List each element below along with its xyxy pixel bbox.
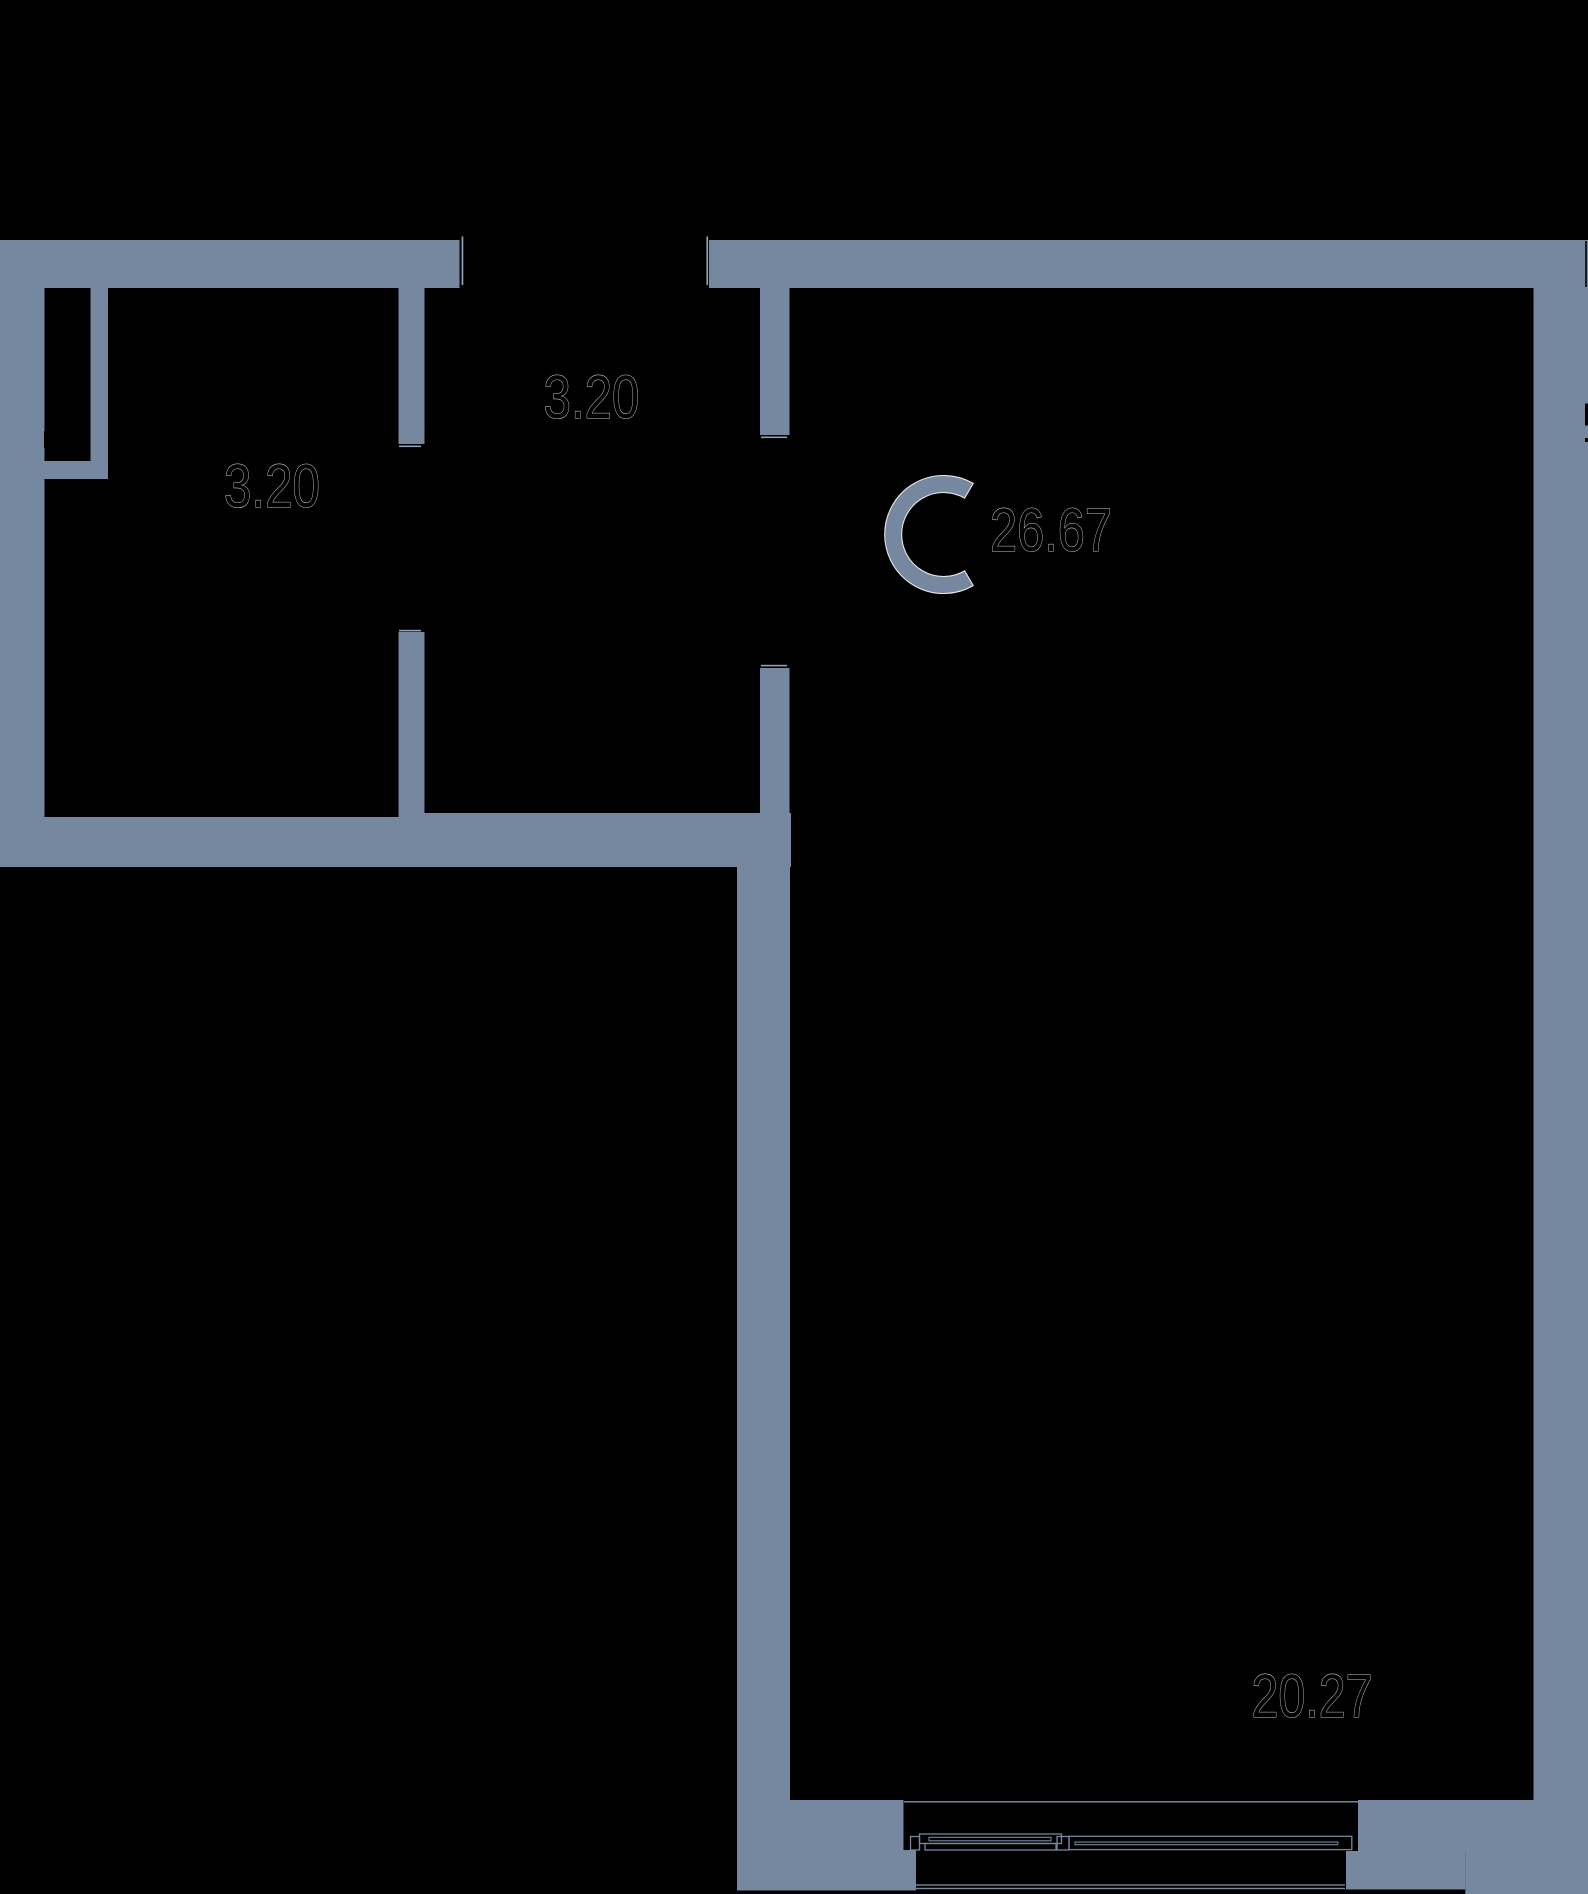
- svg-text:3.20: 3.20: [224, 452, 320, 520]
- svg-text:26.67: 26.67: [990, 496, 1112, 564]
- svg-text:3.20: 3.20: [544, 363, 640, 431]
- svg-text:20.27: 20.27: [1252, 1662, 1373, 1730]
